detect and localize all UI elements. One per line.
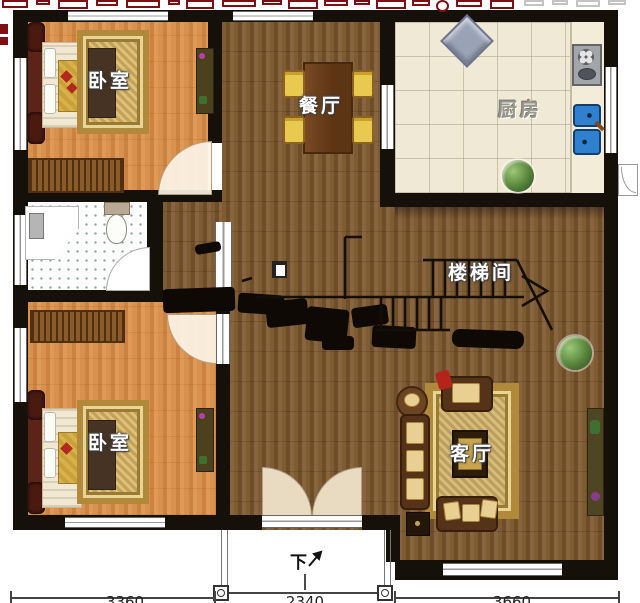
dimension-tick [618, 591, 620, 603]
room-label-bedroom-bottom: 卧室 [50, 432, 170, 454]
sofa-cushion [406, 422, 424, 444]
dimension-tick [394, 591, 396, 603]
dimension-tick [10, 591, 12, 603]
porch-line [221, 530, 222, 585]
porch-line [227, 530, 228, 585]
porch-line [390, 530, 391, 585]
watermark-edge-mark [0, 37, 8, 45]
down-label: 下 [290, 548, 307, 573]
room-label-dining: 餐厅 [261, 95, 381, 117]
porch-column [377, 585, 393, 601]
room-label-kitchen: 厨房 [460, 99, 580, 121]
sofa-cushion [443, 501, 461, 521]
dimension-value-right: 3660 [482, 593, 542, 603]
exterior-landing [618, 164, 638, 196]
watermark-top [0, 0, 640, 12]
dimension-value-center: 2340 [275, 593, 335, 603]
entry-side-table-dot [415, 521, 420, 526]
tv-cabinet-flower [591, 492, 600, 501]
sofa-cushion [406, 478, 424, 500]
armchair-cushion [452, 383, 480, 403]
room-label-stairwell: 楼梯间 [421, 262, 541, 284]
dimension-value-left: 3360 [95, 593, 155, 603]
porch-line [384, 530, 385, 585]
floor-plan: 卧室 餐厅 厨房 楼梯间 卧室 客厅 下 3360 2340 3660 [0, 0, 640, 603]
watermark-edge-mark [0, 24, 8, 34]
tv-cabinet-plant [590, 420, 600, 434]
sofa-cushion [462, 504, 480, 522]
corner-chair-cushion [404, 393, 420, 407]
potted-plant [558, 336, 592, 370]
room-label-bedroom-top: 卧室 [50, 70, 170, 92]
dimension-tick [214, 591, 216, 603]
room-label-living: 客厅 [412, 443, 532, 465]
sofa-cushion [480, 499, 498, 519]
